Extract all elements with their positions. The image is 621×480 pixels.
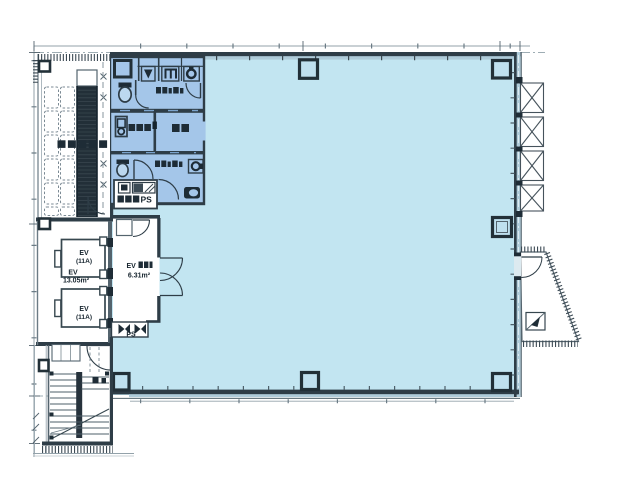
svg-text:EV: EV xyxy=(79,306,89,313)
svg-text:(11A): (11A) xyxy=(76,258,92,265)
svg-text:6.31m²: 6.31m² xyxy=(128,273,151,280)
svg-text:EV: EV xyxy=(127,263,137,270)
svg-text:PS: PS xyxy=(141,195,153,205)
svg-text:EV: EV xyxy=(68,270,78,277)
svg-text:EV: EV xyxy=(79,250,89,257)
svg-text:13.05m²: 13.05m² xyxy=(63,278,90,285)
svg-text:(11A): (11A) xyxy=(76,314,92,321)
svg-text:PS: PS xyxy=(126,332,136,339)
